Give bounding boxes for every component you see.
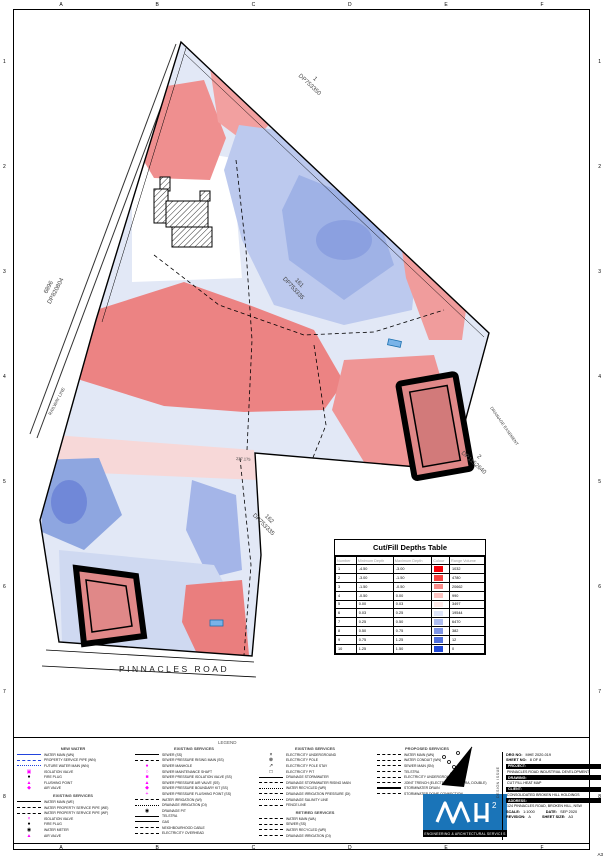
cutfill-cell: 0.50 [356, 627, 393, 636]
legend-line-swatch [259, 824, 283, 825]
cutfill-cell: 10 [336, 644, 357, 653]
date-label: DATE: [546, 810, 557, 814]
grid-ref: 7 [3, 689, 6, 695]
address-value: 124 PINNACLES ROAD, BROKEN HILL, NSW [507, 804, 601, 808]
legend-item-label: DRAINAGE IRRIGATION PRESSURE (DI) [286, 792, 350, 796]
legend-item-label: FIRE PLUG [44, 822, 62, 826]
cutfill-table-panel: Cut/Fill Depths Table Number Minimum Dep… [334, 539, 486, 655]
cutfill-colour-cell [432, 618, 450, 627]
legend-item-label: ELECTRICITY POLE [286, 758, 318, 762]
legend-symbol-icon: ● [135, 764, 159, 768]
legend-section-title: RETIRED SERVICES [259, 810, 371, 815]
grid-ref: B [155, 845, 158, 851]
legend-symbol-icon: ▲ [135, 781, 159, 785]
legend-item-label: WATER IRRIGATION (WI) [162, 798, 202, 802]
scale-label: SCALE: [506, 810, 520, 814]
legend-item-label: AIR VALVE [44, 834, 61, 838]
legend-symbol-icon: ◆ [17, 786, 41, 790]
drg-no-value: MHE 2020-019 [525, 753, 551, 757]
legend-item-label: ELECTRICITY PIT [286, 770, 314, 774]
legend-column-2: EXISTING SERVICESSEWER (SS)SEWER PRESSUR… [135, 744, 253, 838]
legend-section-title: EXISTING SERVICES [135, 746, 253, 751]
cutfill-colour-cell [432, 565, 450, 574]
cutfill-volume-cell: 12 [449, 636, 484, 645]
legend-symbol-icon: ⊗ [259, 758, 283, 762]
legend-symbol-icon: ▲ [17, 834, 41, 838]
col-max-depth: Maximum Depth [393, 557, 431, 565]
colour-swatch [434, 602, 443, 608]
col-min-depth: Minimum Depth [356, 557, 393, 565]
legend-item-label: FLUSHING POINT [44, 781, 72, 785]
legend-item-label: DRAINAGE IRRIGATION (DI) [162, 803, 207, 807]
cutfill-cell: -4.50 [356, 565, 393, 574]
colour-swatch [434, 637, 443, 643]
sheet-size-corner: A3 [597, 852, 603, 857]
legend-symbol-icon: ○ [135, 770, 159, 774]
cutfill-cell: -3.00 [356, 573, 393, 582]
cutfill-cell: 0.50 [393, 618, 431, 627]
grid-ref: B [155, 2, 158, 8]
grid-ref: 4 [598, 374, 601, 380]
grid-ref: F [540, 845, 543, 851]
colour-swatch [434, 646, 443, 652]
legend-item-label: TELSTRA [404, 770, 419, 774]
cutfill-volume-cell: 0 [449, 644, 484, 653]
cutfill-row: 101.251.500 [336, 644, 485, 653]
cutfill-colour-cell [432, 627, 450, 636]
legend-columns: NEW WATERWATER MAIN (WN)PROPERTY SERVICE… [17, 744, 477, 838]
colour-swatch [434, 575, 443, 581]
lot2-number: 2 [475, 454, 482, 461]
legend-line-swatch [377, 793, 401, 794]
road-label: PINNACLES ROAD [119, 664, 229, 674]
railway-label: RAILWAY LINE [47, 387, 66, 416]
client-value: CONSOLIDATED BROKEN HILL HOLDINGS [507, 793, 601, 797]
grid-ref: 6 [598, 584, 601, 590]
grid-ref: 4 [3, 374, 6, 380]
colour-swatch [434, 628, 443, 634]
grid-ref: 2 [3, 164, 6, 170]
legend-item-label: SEWER MAIN (SN) [404, 764, 434, 768]
cutfill-volume-cell: 20662 [449, 582, 484, 591]
legend-item: ▲AIR VALVE [17, 833, 129, 839]
legend-line-swatch [377, 760, 401, 761]
legend-line-swatch [135, 833, 159, 834]
grid-ref: 6 [3, 584, 6, 590]
southwest-structure [76, 568, 144, 644]
grid-ref: 1 [598, 59, 601, 65]
cutfill-cell: 4 [336, 591, 357, 600]
cutfill-row: 50.000.033497 [336, 600, 485, 609]
cutfill-volume-cell: 990 [449, 591, 484, 600]
cutfill-row: 3-1.50-0.5020662 [336, 582, 485, 591]
legend-item-label: SEWER MANHOLE [162, 764, 192, 768]
project-label: PROJECT: [506, 764, 601, 769]
grid-ref: 3 [3, 269, 6, 275]
legend-line-swatch [17, 801, 41, 802]
legend-item-label: WATER METER [44, 828, 69, 832]
grid-ref: D [348, 845, 352, 851]
cutfill-volume-cell: 382 [449, 627, 484, 636]
grid-ref: A [59, 2, 62, 8]
legend-item-label: DRAINAGE STORMWATER RISING MAIN [286, 781, 351, 785]
legend-line-swatch [259, 805, 283, 806]
cutfill-table: Number Minimum Depth Maximum Depth Colou… [335, 556, 485, 654]
legend-symbol-icon: ↗ [259, 764, 283, 768]
lot1-number: 1 [311, 76, 318, 83]
legend-item-label: FIRE PLUG [44, 775, 62, 779]
cutfill-cell: 6 [336, 609, 357, 618]
cutfill-cell: 0.75 [356, 636, 393, 645]
address-label: ADDRESS: [506, 798, 601, 803]
cutfill-row: 1-4.50-3.001032 [336, 565, 485, 574]
drg-no-label: DRG NO: [506, 753, 522, 757]
legend-item-label: ELECTRICITY POLE STAY [286, 764, 327, 768]
legend-line-swatch [135, 827, 159, 828]
legend-line-swatch [259, 793, 283, 794]
cutfill-row: 4-0.500.00990 [336, 591, 485, 600]
title-block: DRG NO: MHE 2020-019 SHEET NO: 8 OF 8 PR… [502, 752, 601, 840]
legend-item-label: AIR VALVE [44, 786, 61, 790]
cutfill-row: 80.500.75382 [336, 627, 485, 636]
dam-structure [398, 374, 472, 479]
cutfill-table-body: 1-4.50-3.0010322-3.00-1.5047803-1.50-0.5… [336, 565, 485, 654]
cutfill-cell: 5 [336, 600, 357, 609]
company-logo: 2 ENGINEERING & ARCHITECTURAL SERVICES [423, 794, 507, 837]
sheet-size-value: A3 [568, 815, 573, 819]
legend-symbol-icon: ◉ [135, 809, 159, 813]
grid-ref: 8 [3, 794, 6, 800]
legend-symbol-icon: □ [259, 770, 283, 774]
cutfill-cell: 0.25 [393, 609, 431, 618]
revision-value: A [528, 815, 531, 819]
legend-line-swatch [377, 771, 401, 772]
cutfill-cell: 1.50 [393, 644, 431, 653]
legend-line-swatch [259, 835, 283, 836]
colour-swatch [434, 611, 443, 617]
cutfill-table-title: Cut/Fill Depths Table [335, 540, 485, 556]
cutfill-cell: 2 [336, 573, 357, 582]
site-map: 1 DP753350 6896 DP820804 RAILWAY LINE 16… [14, 10, 590, 736]
legend-symbol-icon: ■ [135, 775, 159, 779]
grid-left: 12345678 [3, 9, 6, 850]
legend-line-swatch [259, 788, 283, 789]
legend-item: DRAINAGE IRRIGATION (DI) [259, 833, 371, 839]
legend-symbol-icon: × [17, 817, 41, 821]
legend-item-label: SEWER PRESSURE AIR VALVE (SS) [162, 781, 220, 785]
legend-symbol-icon: + [135, 792, 159, 796]
legend-item-label: ELECTRICITY UNDERGROUND [286, 753, 336, 757]
grid-ref: F [540, 2, 543, 8]
legend-item: FENCE LINE [259, 802, 371, 808]
colour-swatch [434, 584, 443, 590]
drawing-label: DRAWING: [506, 775, 601, 780]
legend-item-label: FENCE LINE [286, 803, 306, 807]
legend-item-label: SEWER PRESSURE ISOLATION VALVE (SS) [162, 775, 232, 779]
drawing-sheet: ABCDEF ABCDEF 12345678 12345678 A3 [0, 0, 604, 858]
cutfill-cell: -0.50 [393, 582, 431, 591]
col-number: Number [336, 557, 357, 565]
revision-label: REVISION: [506, 815, 525, 819]
grid-ref: E [444, 2, 447, 8]
grid-bottom: ABCDEF [13, 843, 590, 851]
legend-line-swatch [377, 777, 401, 778]
legend-line-swatch [17, 754, 41, 755]
legend-item-label: PROPERTY SERVICE PIPE (WN) [44, 758, 96, 762]
legend-symbol-icon: ▲ [17, 781, 41, 785]
grid-ref: D [348, 2, 352, 8]
cutfill-colour-cell [432, 644, 450, 653]
sheet-no-value: 8 OF 8 [530, 758, 542, 762]
legend-item-label: SEWER PRESSURE RISING MAIN (SS) [162, 758, 224, 762]
grid-ref: 5 [3, 479, 6, 485]
easement-label: DRAINAGE EASEMENT [489, 406, 520, 447]
legend-line-swatch [135, 799, 159, 800]
drawing-value: CUT FILL HEAT MAP [507, 781, 601, 785]
legend-item-label: SEWER (SS) [162, 753, 182, 757]
legend-section-title: NEW WATER [17, 746, 129, 751]
cutfill-cell: 1 [336, 565, 357, 574]
legend-section-title: EXISTING SERVICES [17, 793, 129, 798]
project-value: PINNACLES ROAD INDUSTRIAL DEVELOPMENT [507, 770, 601, 774]
legend-item-label: SEWER PRESSURE BOUNDARY KIT (SS) [162, 786, 228, 790]
legend-line-swatch [17, 760, 41, 761]
legend-item-label: DRAINAGE STORMWATER [286, 775, 329, 779]
colour-swatch [434, 566, 443, 572]
legend-item-label: DRAINAGE SALINITY LINE [286, 798, 328, 802]
client-label: CLIENT: [506, 787, 601, 792]
legend-item-label: WATER PROPERTY SERVICE PIPE (WE) [44, 806, 108, 810]
grid-ref: 1 [3, 59, 6, 65]
legend-item-label: DRAINAGE IRRIGATION (DI) [286, 834, 331, 838]
col-range-volume: Range Volume [449, 557, 484, 565]
cutfill-volume-cell: 6470 [449, 618, 484, 627]
colour-swatch [434, 593, 443, 599]
cutfill-volume-cell: 19544 [449, 609, 484, 618]
legend-item-label: NEIGHBOURHOOD CABLE [162, 826, 205, 830]
cutfill-colour-cell [432, 582, 450, 591]
grid-ref: C [252, 845, 256, 851]
cutfill-row: 90.751.2512 [336, 636, 485, 645]
sheet-size-label: SHEET SIZE: [542, 815, 565, 819]
cutfill-row: 2-3.00-1.504780 [336, 573, 485, 582]
legend-item-label: SEWER MAINTENANCE SHAFT [162, 770, 212, 774]
legend-item-label: DRAINAGE PIT [162, 809, 186, 813]
cutfill-cell: 0.00 [356, 600, 393, 609]
legend-line-swatch [135, 760, 159, 761]
cutfill-colour-cell [432, 609, 450, 618]
legend-item-label: ISOLATION VALVE [44, 817, 73, 821]
logo-tagline: ENGINEERING & ARCHITECTURAL SERVICES [423, 830, 507, 837]
date-value: SEP 2020 [560, 810, 577, 814]
legend-band: LEGEND NEW WATERWATER MAIN (WN)PROPERTY … [13, 737, 590, 843]
legend-item-label: GAS [162, 820, 169, 824]
grid-ref: 3 [598, 269, 601, 275]
cutfill-cell: 9 [336, 636, 357, 645]
legend-line-swatch [377, 787, 401, 789]
legend-line-swatch [135, 816, 159, 817]
colour-swatch [434, 619, 443, 625]
legend-item-label: TELSTRA [162, 814, 177, 818]
legend-line-swatch [259, 818, 283, 819]
legend-line-swatch [17, 807, 41, 808]
logo-mark: 2 [423, 794, 507, 830]
legend-symbol-icon: × [259, 753, 283, 757]
legend-column-3: EXISTING SERVICES×ELECTRICITY UNDERGROUN… [259, 744, 371, 838]
legend-symbol-icon: ● [17, 775, 41, 779]
legend-item-label: WATER MAIN (WA) [286, 817, 316, 821]
cutfill-volume-cell: 4780 [449, 573, 484, 582]
col-colour: Colour [432, 557, 450, 565]
legend-item-label: SEWER (SS) [286, 822, 306, 826]
cutfill-volume-cell: 3497 [449, 600, 484, 609]
dimension-label: 227.175 [236, 456, 251, 462]
legend-line-swatch [377, 782, 401, 783]
legend-line-swatch [135, 805, 159, 806]
scale-value: 1:1000 [523, 810, 535, 814]
cutfill-cell: 3 [336, 582, 357, 591]
cutfill-volume-cell: 1032 [449, 565, 484, 574]
legend-item: ◆AIR VALVE [17, 786, 129, 792]
legend-symbol-icon: ● [17, 822, 41, 826]
sheet-no-label: SHEET NO: [506, 758, 527, 762]
cutfill-cell: -1.50 [356, 582, 393, 591]
grid-ref: 5 [598, 479, 601, 485]
cutfill-colour-cell [432, 600, 450, 609]
legend-line-swatch [259, 829, 283, 830]
cutfill-cell: 1.25 [393, 636, 431, 645]
north-arrow-icon [432, 741, 488, 791]
cutfill-cell: 8 [336, 627, 357, 636]
grid-ref: C [252, 2, 256, 8]
cutfill-colour-cell [432, 636, 450, 645]
cutfill-cell: 1.25 [356, 644, 393, 653]
legend-item-label: WATER MAIN (WE) [44, 800, 74, 804]
grid-ref: E [444, 845, 447, 851]
legend-item-label: FUTURE WATER MAIN (WN) [44, 764, 89, 768]
cutfill-row: 60.030.2519544 [336, 609, 485, 618]
cutfill-colour-cell [432, 591, 450, 600]
legend-line-swatch [377, 765, 401, 766]
grid-top: ABCDEF [13, 1, 590, 9]
cutfill-cell: 0.03 [356, 609, 393, 618]
legend-item-label: WATER RECYCLED (WR) [286, 786, 326, 790]
grid-right: 12345678 [598, 9, 601, 850]
legend-item-label: ELECTRICITY OVERHEAD [162, 831, 204, 835]
cutfill-cell: 0.03 [393, 600, 431, 609]
legend-symbol-icon: ◉ [17, 828, 41, 832]
legend-item-label: ISOLATION VALVE [44, 770, 73, 774]
cutfill-cell: -3.00 [393, 565, 431, 574]
lot1-dp: DP753350 [297, 73, 322, 97]
grid-ref: 2 [598, 164, 601, 170]
legend-symbol-icon: ▣ [17, 770, 41, 774]
legend-line-swatch [259, 777, 283, 778]
cutfill-cell: 0.00 [393, 591, 431, 600]
legend-item-label: WATER MAIN (WN) [404, 753, 434, 757]
cutfill-cell: 0.25 [356, 618, 393, 627]
cutfill-colour-cell [432, 573, 450, 582]
cutfill-cell: -1.50 [393, 573, 431, 582]
legend-line-swatch [135, 821, 159, 822]
legend-item-label: SEWER PRESSURE FLUSHING POINT (SS) [162, 792, 231, 796]
legend-item-label: WATER PROPERTY SERVICE PIPE (WF) [44, 811, 108, 815]
legend-symbol-icon: ◆ [135, 786, 159, 790]
cutfill-cell: 0.75 [393, 627, 431, 636]
legend-line-swatch [135, 754, 159, 755]
legend-line-swatch [17, 765, 41, 766]
design-issue-label: DESIGN ISSUE [496, 766, 500, 798]
cutfill-row: 70.250.506470 [336, 618, 485, 627]
legend-column-1: NEW WATERWATER MAIN (WN)PROPERTY SERVICE… [17, 744, 129, 838]
cutfill-cell: -0.50 [356, 591, 393, 600]
grid-ref: 7 [598, 689, 601, 695]
legend-line-swatch [17, 813, 41, 814]
legend-section-title: EXISTING SERVICES [259, 746, 371, 751]
cutfill-header-row: Number Minimum Depth Maximum Depth Colou… [336, 557, 485, 565]
grid-ref: A [59, 845, 62, 851]
cutfill-cell: 7 [336, 618, 357, 627]
legend-item-label: WATER MAIN (WN) [44, 753, 74, 757]
legend-item-label: WATER RECYCLED (WR) [286, 828, 326, 832]
legend-line-swatch [259, 782, 283, 783]
legend-line-swatch [377, 754, 401, 755]
legend-line-swatch [259, 799, 283, 800]
logo-superscript: 2 [492, 801, 497, 810]
legend-item: ELECTRICITY OVERHEAD [135, 830, 253, 836]
